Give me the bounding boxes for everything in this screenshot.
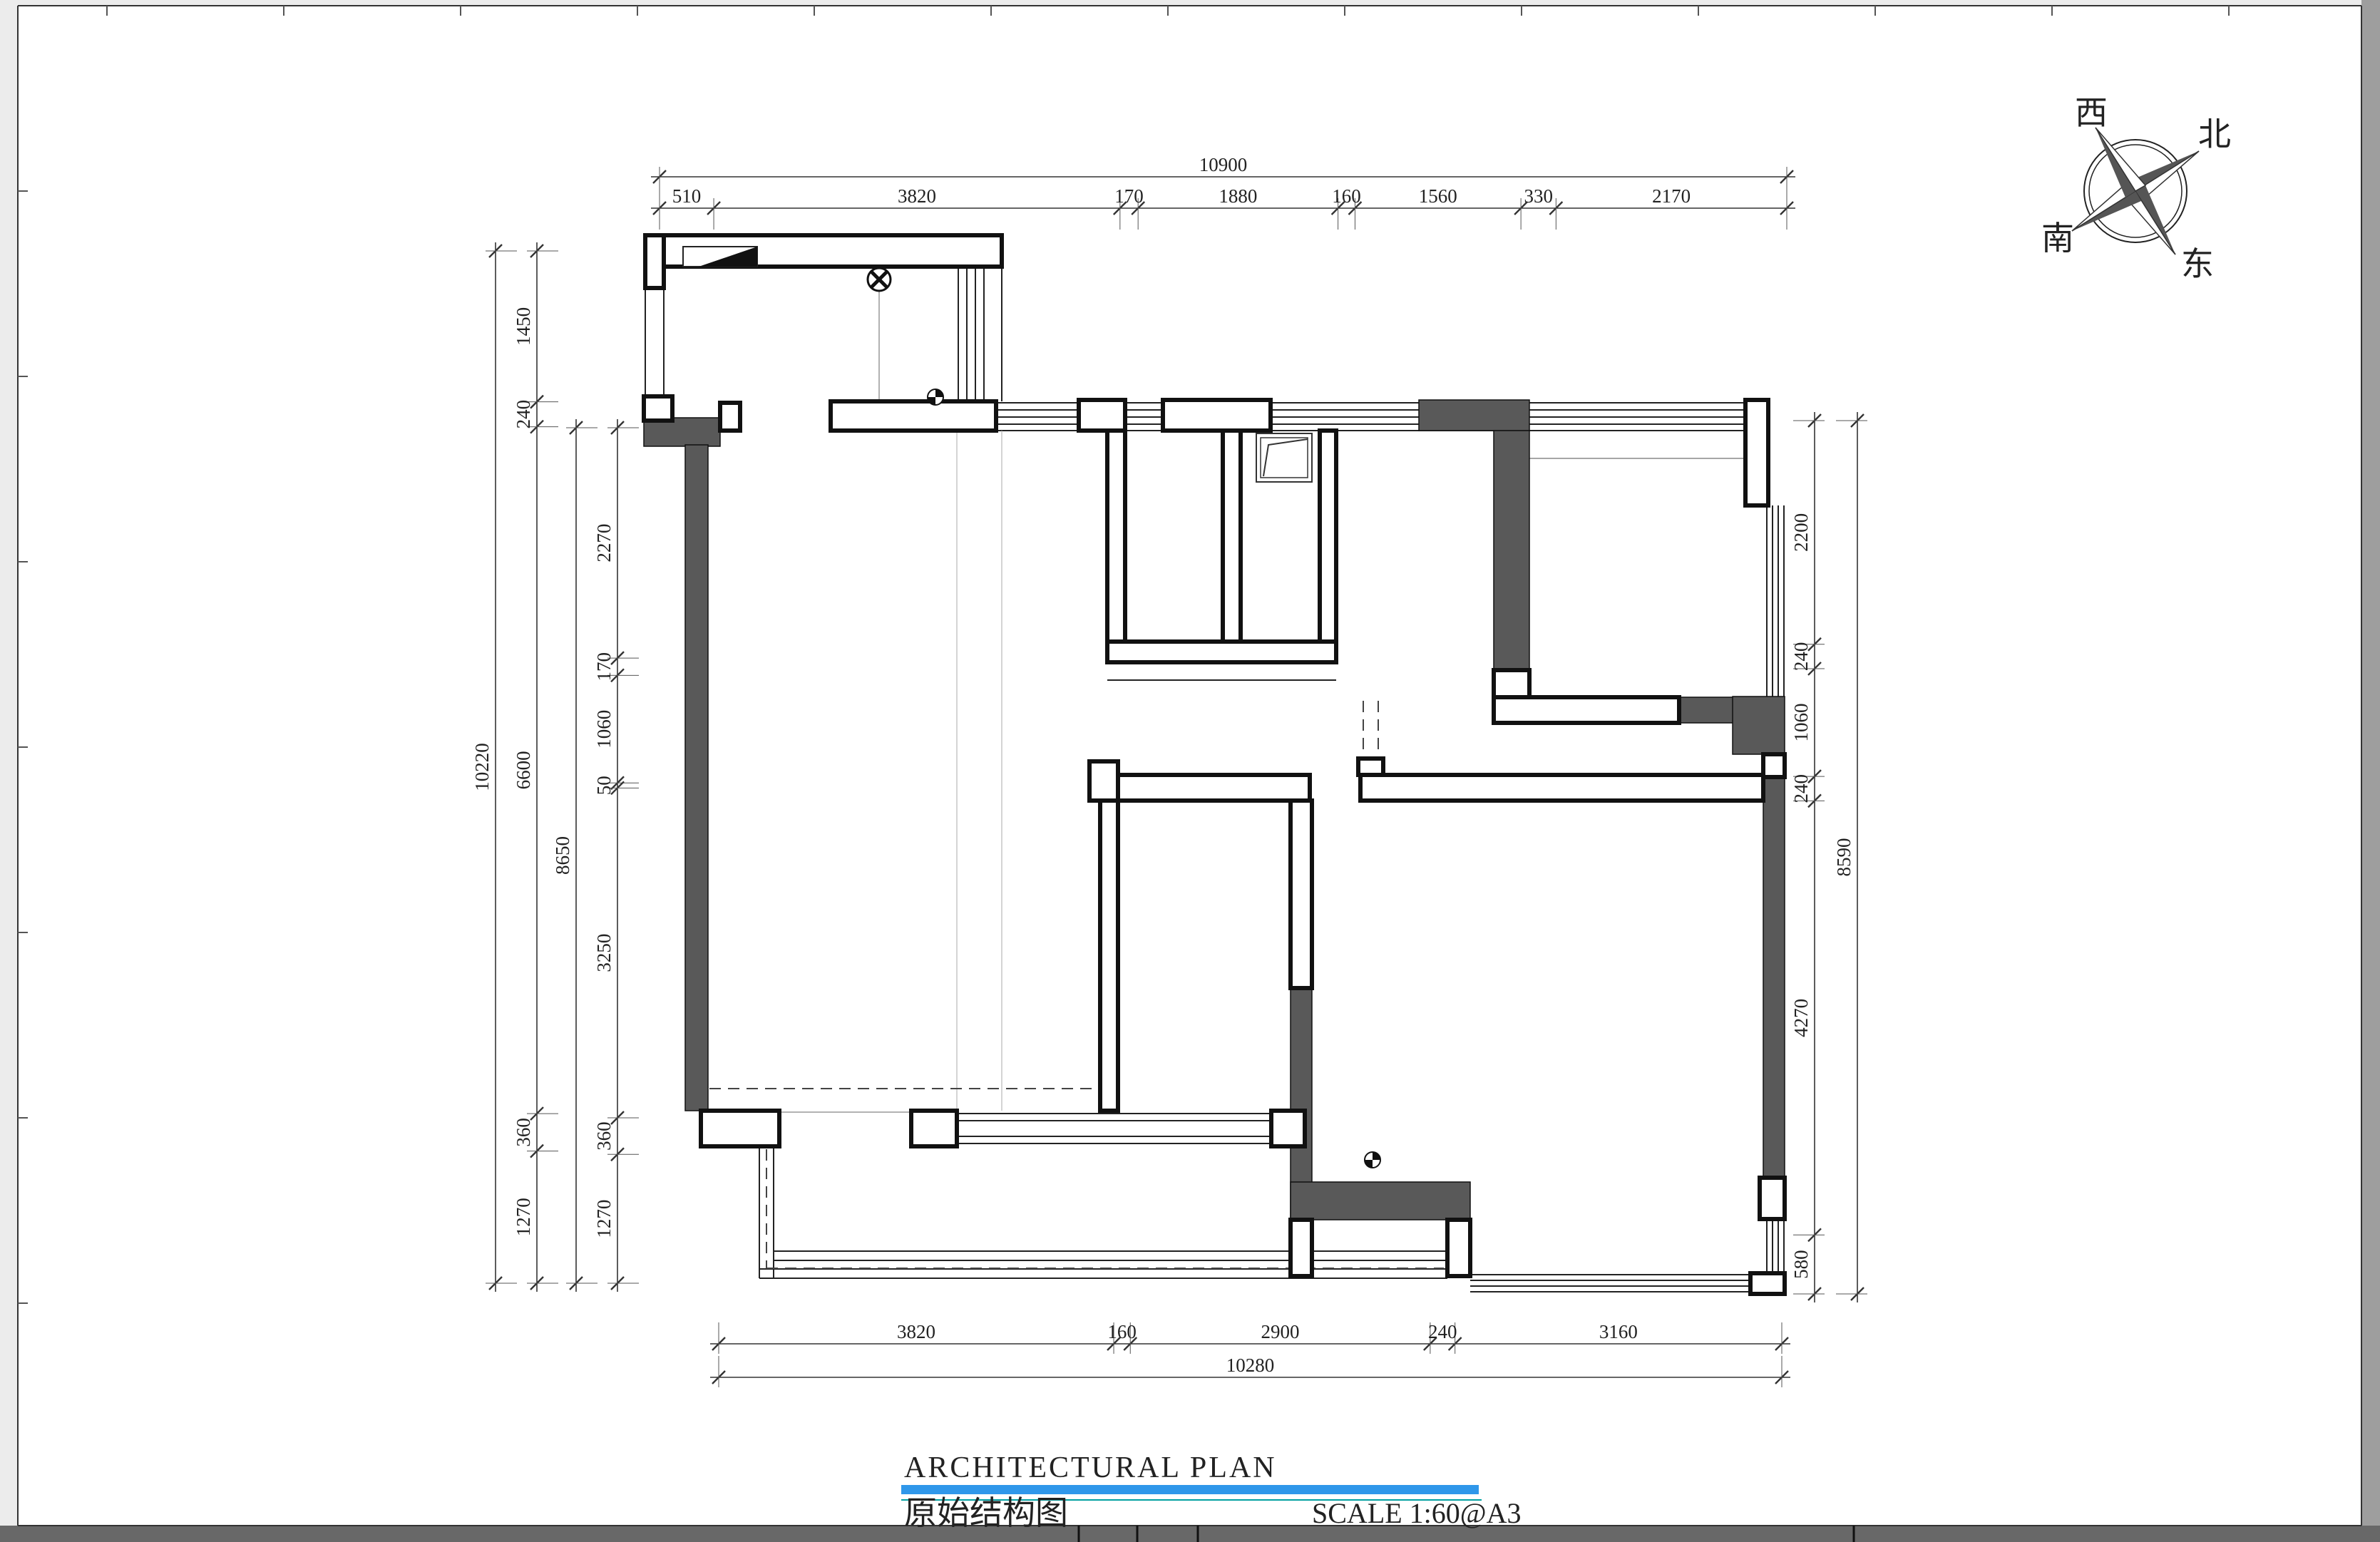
drawing-element [1419, 400, 1529, 431]
drawing-element [1271, 1111, 1305, 1146]
drawing-sheet: 西 北 南 东 10900510382017018801601560330217… [0, 0, 2380, 1542]
drawing-element [831, 401, 996, 431]
dim-label: 360 [513, 1118, 534, 1147]
drawing-element [701, 1111, 779, 1146]
dim-label: 10900 [1199, 154, 1248, 175]
dim-label: 330 [1524, 185, 1553, 207]
drawing-element [1291, 1220, 1312, 1276]
drawing-element [1100, 801, 1118, 1111]
sheet-title-cn: 原始结构图 [904, 1495, 1068, 1531]
drawing-element [1223, 431, 1241, 662]
dim-label: 10220 [471, 743, 493, 791]
dim-label: 10280 [1226, 1355, 1275, 1376]
drawing-element [1733, 697, 1785, 754]
drawing-element [1107, 431, 1125, 662]
drawing-element [685, 445, 708, 1111]
dim-label: 6600 [513, 751, 534, 789]
dim-label: 1880 [1219, 185, 1257, 207]
dim-label: 2170 [1652, 185, 1691, 207]
dim-label: 2200 [1790, 513, 1812, 552]
drawing-element [2361, 0, 2380, 1542]
dim-label: 240 [1790, 774, 1812, 803]
drawing-element [0, 0, 2380, 6]
drawing-element [1291, 801, 1312, 988]
drawing-element [720, 403, 740, 431]
dim-label: 1560 [1419, 185, 1457, 207]
drawing-element [1494, 670, 1529, 697]
compass-east-label: 东 [2181, 246, 2214, 282]
drawing-element [1291, 1182, 1470, 1220]
drawing-element [1760, 1178, 1785, 1219]
drawing-element [1494, 697, 1679, 723]
dim-label: 1270 [513, 1198, 534, 1236]
dim-label: 2270 [593, 524, 615, 562]
dim-label: 3820 [898, 185, 936, 207]
dim-label: 3160 [1599, 1321, 1638, 1342]
drawing-element [1360, 775, 1763, 801]
dim-label: 160 [1107, 1321, 1137, 1342]
drawing-element [911, 1111, 957, 1146]
dim-label: 1270 [593, 1200, 615, 1238]
drawing-element [1358, 759, 1383, 775]
compass-north-label: 北 [2198, 116, 2231, 153]
drawing-element [1763, 754, 1785, 777]
drawing-element [1763, 777, 1785, 1178]
dim-label: 1450 [513, 307, 534, 346]
dim-label: 170 [593, 652, 615, 682]
sheet-title-en: ARCHITECTURAL PLAN [904, 1451, 1277, 1484]
floor-plan-canvas: 西 北 南 东 10900510382017018801601560330217… [0, 0, 2380, 1542]
floor-drain-symbol [868, 268, 891, 291]
quadrant-marker-symbol [928, 389, 943, 405]
dim-label: 170 [1114, 185, 1144, 207]
drawing-element [1118, 775, 1310, 801]
dim-label: 360 [593, 1121, 615, 1151]
dim-label: 510 [672, 185, 702, 207]
compass-west-label: 西 [2075, 95, 2108, 131]
drawing-element [1089, 761, 1118, 801]
drawing-element [1447, 1220, 1470, 1276]
sheet-scale-label: SCALE 1:60@A3 [1312, 1497, 1522, 1529]
title-accent-bar [901, 1485, 1479, 1494]
drawing-element [1494, 431, 1529, 670]
dim-label: 240 [1428, 1321, 1457, 1342]
drawing-element [0, 0, 2380, 1542]
dim-label: 2900 [1261, 1321, 1300, 1342]
dim-label: 8590 [1833, 838, 1855, 877]
dim-label: 240 [513, 400, 534, 429]
quadrant-marker-symbol [1365, 1152, 1380, 1168]
drawing-element [1079, 400, 1125, 431]
dim-label: 160 [1332, 185, 1361, 207]
dim-label: 3250 [593, 934, 615, 972]
compass-south-label: 南 [2041, 220, 2074, 257]
dim-label: 8650 [552, 836, 573, 875]
dim-label: 1060 [1790, 704, 1812, 742]
drawing-element [1320, 431, 1336, 662]
entry-door-sill-detail [683, 247, 757, 267]
drawing-element [644, 396, 672, 421]
drawing-element [645, 235, 664, 288]
dim-label: 50 [593, 776, 615, 795]
drawing-element [0, 1526, 2380, 1542]
dim-label: 3820 [897, 1321, 935, 1342]
dim-label: 4270 [1790, 999, 1812, 1037]
dim-label: 1060 [593, 710, 615, 749]
drawing-element [0, 0, 18, 1542]
page-border [0, 0, 2380, 1542]
drawing-element [1163, 400, 1271, 431]
drawing-element [1107, 642, 1336, 662]
drawing-element [1750, 1273, 1785, 1294]
dim-label: 240 [1790, 642, 1812, 672]
dim-label: 580 [1790, 1250, 1812, 1279]
drawing-element [1745, 400, 1768, 505]
